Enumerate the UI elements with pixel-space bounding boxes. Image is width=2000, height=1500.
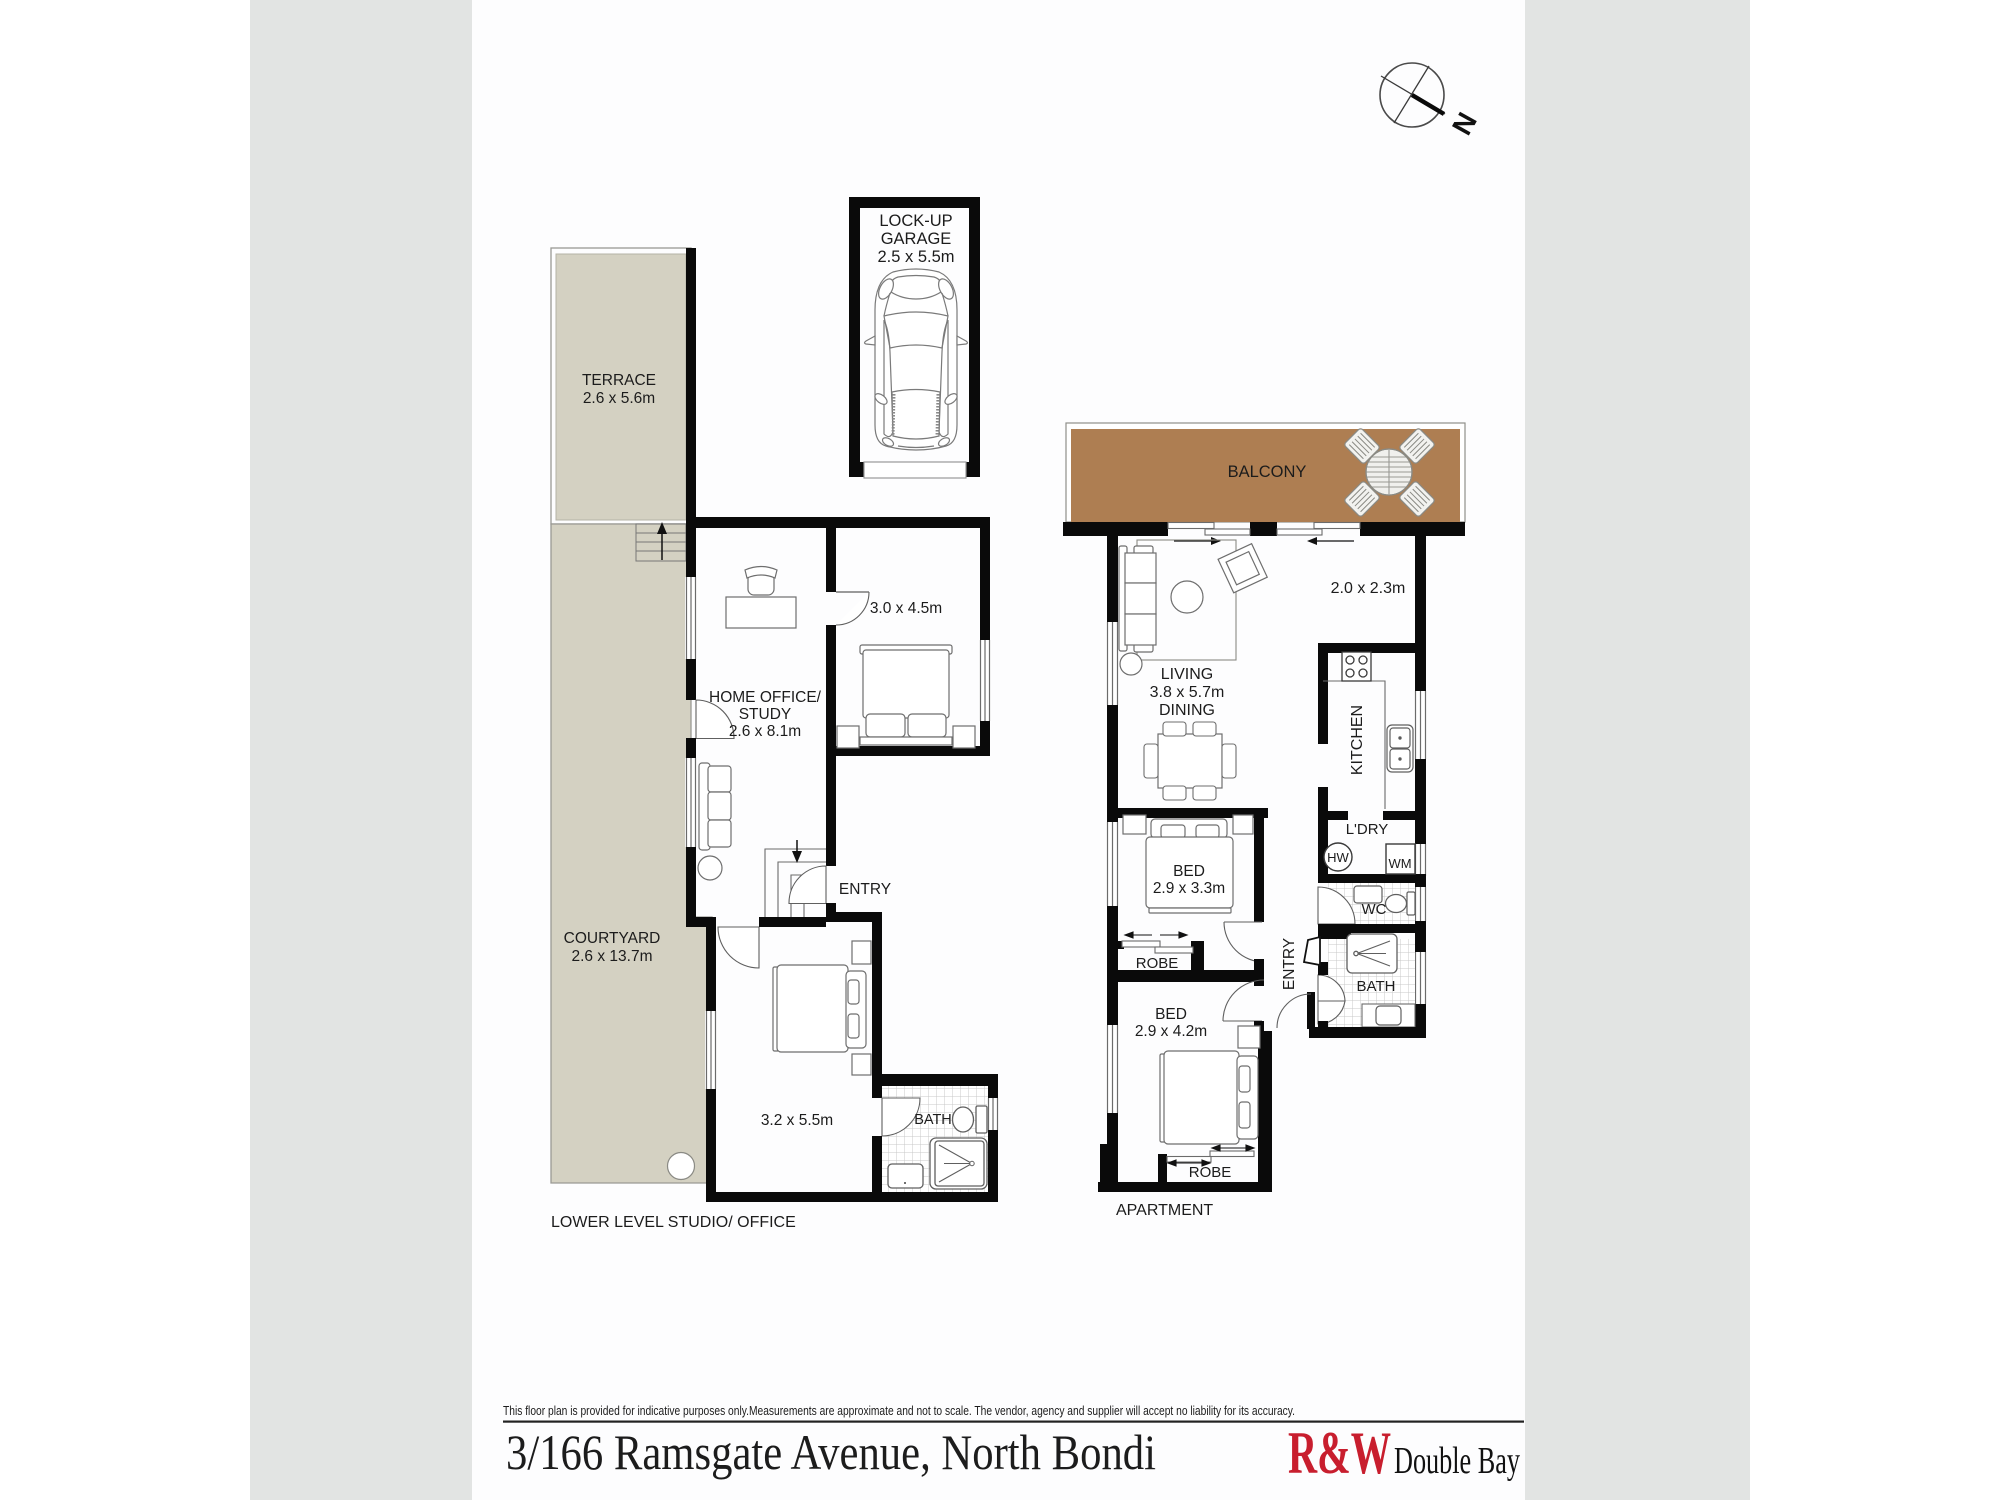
svg-text:BED: BED xyxy=(1155,1006,1187,1023)
svg-text:BALCONY: BALCONY xyxy=(1228,463,1307,481)
svg-text:WM: WM xyxy=(1388,856,1411,871)
svg-text:ROBE: ROBE xyxy=(1136,955,1179,972)
svg-text:TERRACE: TERRACE xyxy=(582,372,656,389)
svg-text:APARTMENT: APARTMENT xyxy=(1116,1202,1213,1219)
svg-text:2.5 x 5.5m: 2.5 x 5.5m xyxy=(877,248,954,266)
svg-text:R&W: R&W xyxy=(1288,1420,1391,1486)
svg-text:2.9 x 3.3m: 2.9 x 3.3m xyxy=(1153,880,1225,897)
svg-text:LOCK-UP: LOCK-UP xyxy=(879,212,952,230)
svg-text:2.6 x 13.7m: 2.6 x 13.7m xyxy=(572,948,653,965)
svg-text:HW: HW xyxy=(1327,850,1349,865)
svg-text:LOWER LEVEL STUDIO/ OFFICE: LOWER LEVEL STUDIO/ OFFICE xyxy=(551,1214,796,1231)
svg-text:ENTRY: ENTRY xyxy=(1281,938,1298,990)
svg-text:2.6 x 5.6m: 2.6 x 5.6m xyxy=(583,390,655,407)
svg-text:3.2 x 5.5m: 3.2 x 5.5m xyxy=(761,1112,833,1129)
svg-text:LIVING: LIVING xyxy=(1161,666,1213,683)
svg-text:HOME OFFICE/: HOME OFFICE/ xyxy=(709,689,822,706)
svg-text:COURTYARD: COURTYARD xyxy=(564,930,661,947)
svg-text:STUDY: STUDY xyxy=(739,706,792,723)
svg-text:GARAGE: GARAGE xyxy=(881,230,952,248)
svg-text:L'DRY: L'DRY xyxy=(1346,821,1389,838)
svg-text:ROBE: ROBE xyxy=(1189,1164,1232,1181)
svg-text:BED: BED xyxy=(1173,863,1205,880)
svg-text:This floor plan is provided fo: This floor plan is provided for indicati… xyxy=(503,1403,1295,1418)
svg-text:BATH: BATH xyxy=(914,1112,952,1128)
svg-text:3.8 x 5.7m: 3.8 x 5.7m xyxy=(1150,684,1225,701)
svg-text:3.0 x 4.5m: 3.0 x 4.5m xyxy=(870,600,942,617)
svg-text:Double Bay: Double Bay xyxy=(1394,1440,1520,1482)
svg-text:DINING: DINING xyxy=(1159,702,1215,719)
svg-text:2.6 x 8.1m: 2.6 x 8.1m xyxy=(729,723,801,740)
svg-text:2.9 x 4.2m: 2.9 x 4.2m xyxy=(1135,1023,1207,1040)
svg-text:3/166 Ramsgate Avenue, North B: 3/166 Ramsgate Avenue, North Bondi xyxy=(506,1424,1156,1480)
svg-text:WC: WC xyxy=(1362,901,1387,918)
svg-text:BATH: BATH xyxy=(1357,978,1396,995)
svg-text:ENTRY: ENTRY xyxy=(839,881,891,898)
svg-text:2.0 x 2.3m: 2.0 x 2.3m xyxy=(1331,580,1406,597)
svg-text:KITCHEN: KITCHEN xyxy=(1349,705,1366,775)
